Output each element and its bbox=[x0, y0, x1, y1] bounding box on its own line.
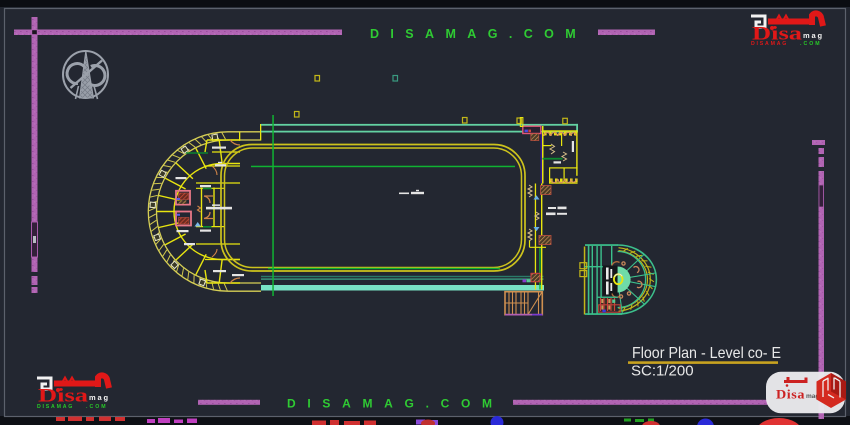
svg-text:DISAMAG: DISAMAG bbox=[751, 41, 788, 47]
svg-text:Floor Plan - Level co- E: Floor Plan - Level co- E bbox=[632, 345, 781, 362]
svg-text:mag: mag bbox=[89, 393, 110, 402]
svg-text:mag: mag bbox=[803, 31, 824, 40]
svg-text:DISAMAG.COM: DISAMAG.COM bbox=[287, 397, 504, 411]
svg-text:.COM: .COM bbox=[800, 41, 822, 47]
svg-text:SC:1/200: SC:1/200 bbox=[631, 363, 694, 380]
svg-text:DISAMAG.COM: DISAMAG.COM bbox=[370, 27, 587, 41]
svg-text:Disa: Disa bbox=[776, 388, 805, 402]
svg-text:DISAMAG: DISAMAG bbox=[37, 404, 74, 410]
svg-text:.COM: .COM bbox=[86, 404, 108, 410]
